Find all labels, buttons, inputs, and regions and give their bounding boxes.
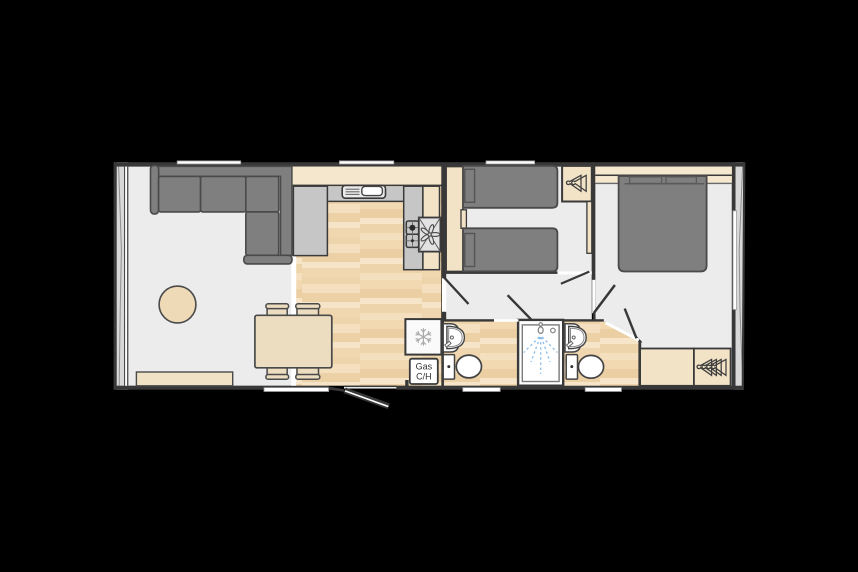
svg-text:Gas: Gas [416, 361, 433, 371]
svg-text:C/H: C/H [416, 372, 432, 382]
